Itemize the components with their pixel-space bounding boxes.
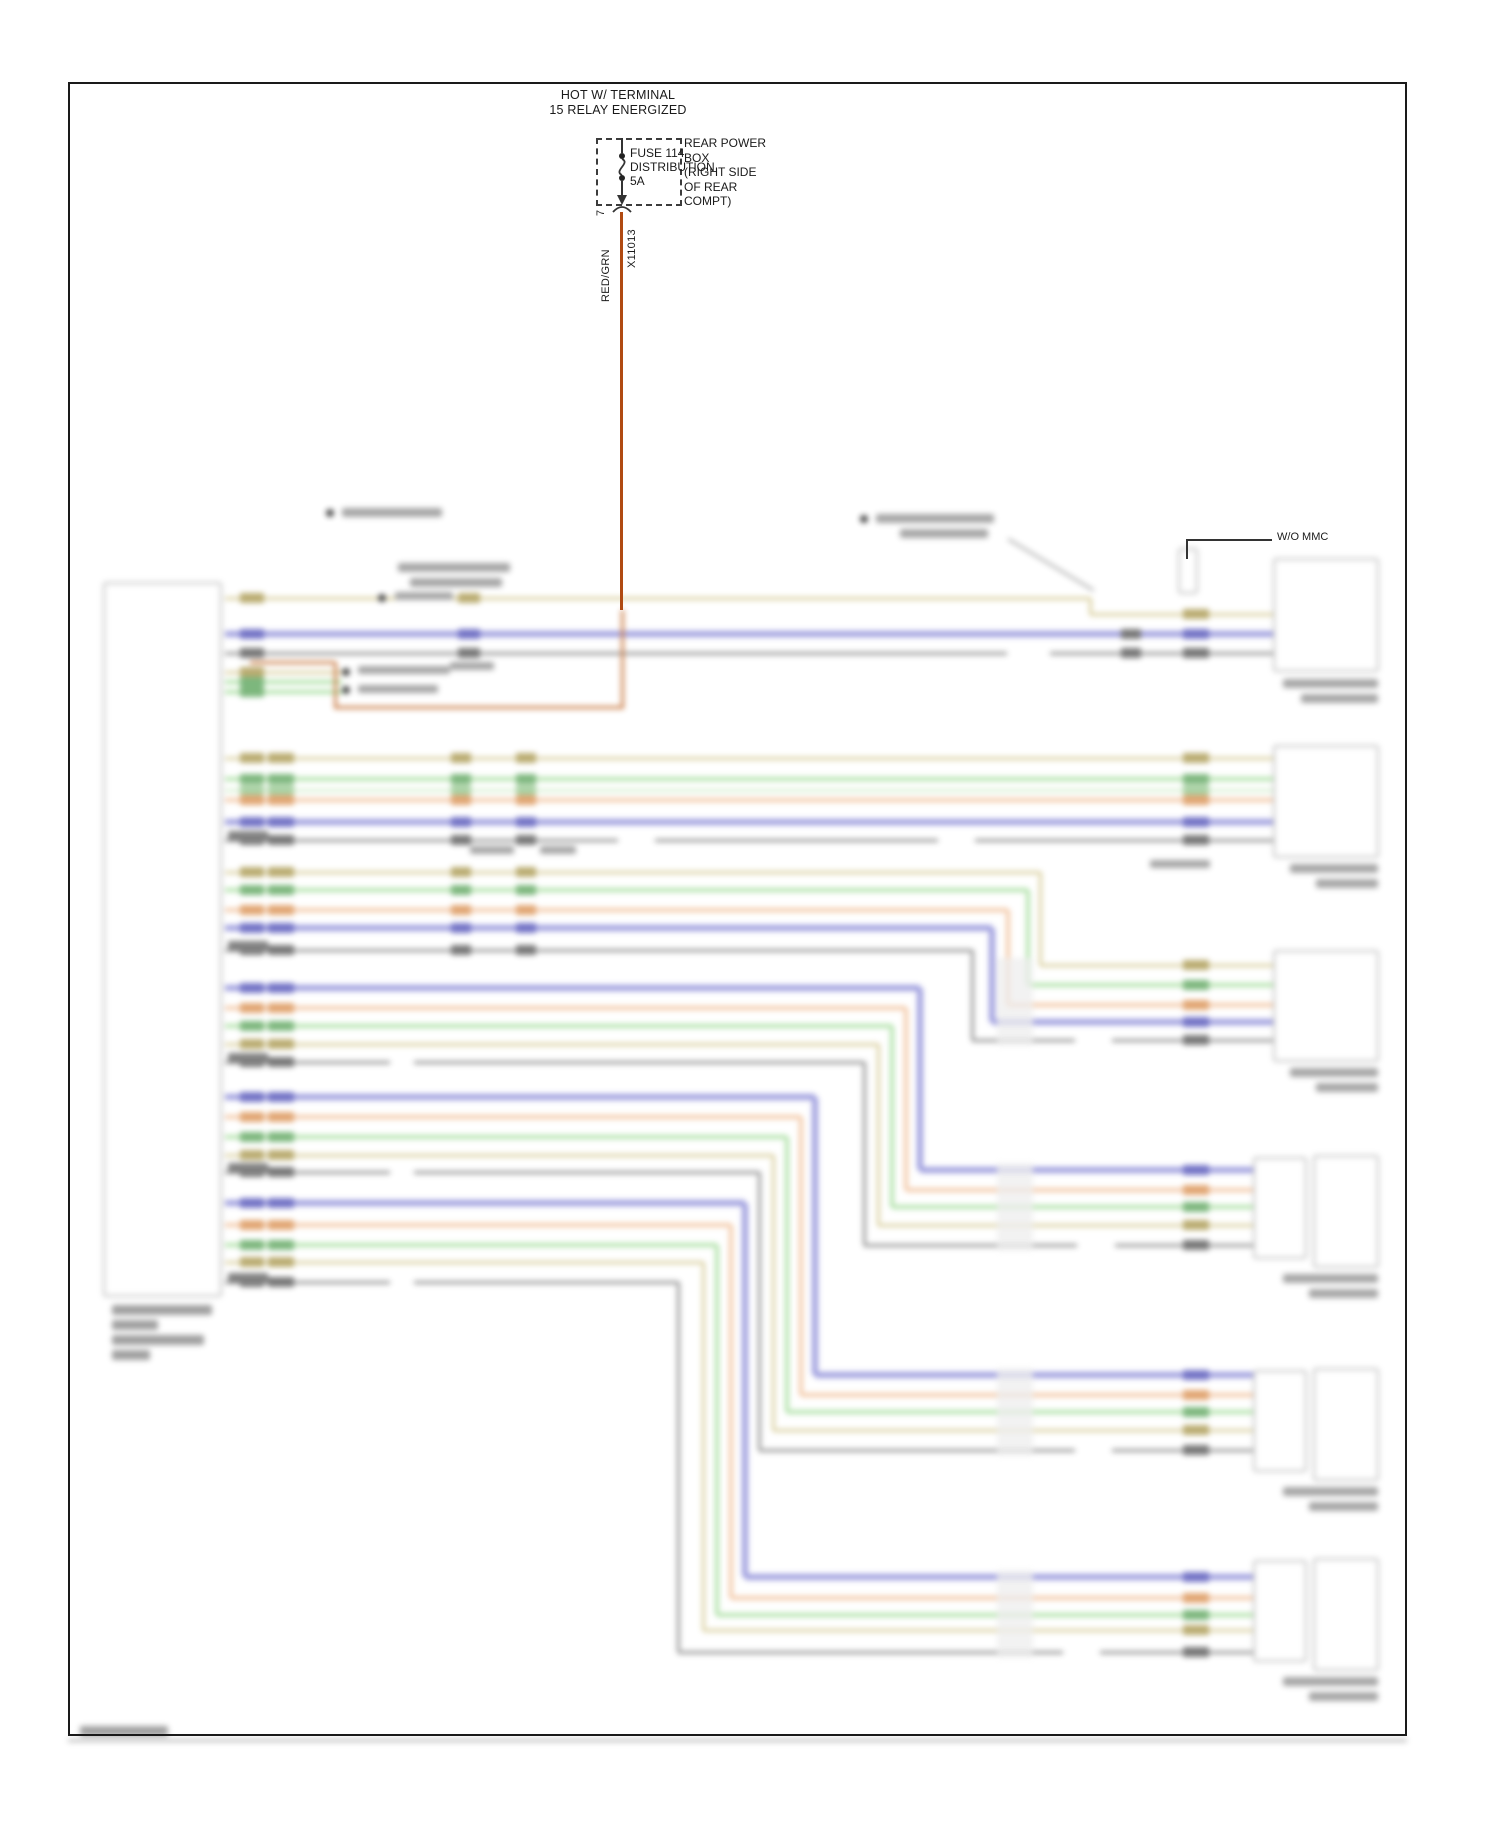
wo-mmc-bracket-line	[1187, 539, 1272, 541]
pin-number: 7	[595, 198, 607, 216]
wo-mmc-bracket-drop	[1186, 539, 1188, 559]
location-line: (RIGHT SIDE	[684, 165, 766, 180]
wo-mmc-annotation: W/O MMC	[1277, 531, 1328, 543]
hot-feed-line2: 15 RELAY ENERGIZED	[533, 103, 703, 118]
location-line: COMPT)	[684, 194, 766, 209]
location-line: OF REAR	[684, 180, 766, 195]
wire-color-label: RED/GRN	[600, 238, 612, 302]
hot-feed-label: HOT W/ TERMINAL 15 RELAY ENERGIZED	[533, 88, 703, 118]
hot-feed-line1: HOT W/ TERMINAL	[533, 88, 703, 103]
red-grn-power-wire	[620, 212, 623, 610]
connector-id: X11013	[626, 210, 638, 268]
sheet-border	[68, 82, 1407, 1736]
location-line: REAR POWER	[684, 136, 766, 151]
diagram-overlay: HOT W/ TERMINAL 15 RELAY ENERGIZED FUSE …	[0, 0, 1500, 1828]
power-box-location-label: REAR POWER BOX (RIGHT SIDE OF REAR COMPT…	[684, 136, 766, 209]
location-line: BOX	[684, 151, 766, 166]
